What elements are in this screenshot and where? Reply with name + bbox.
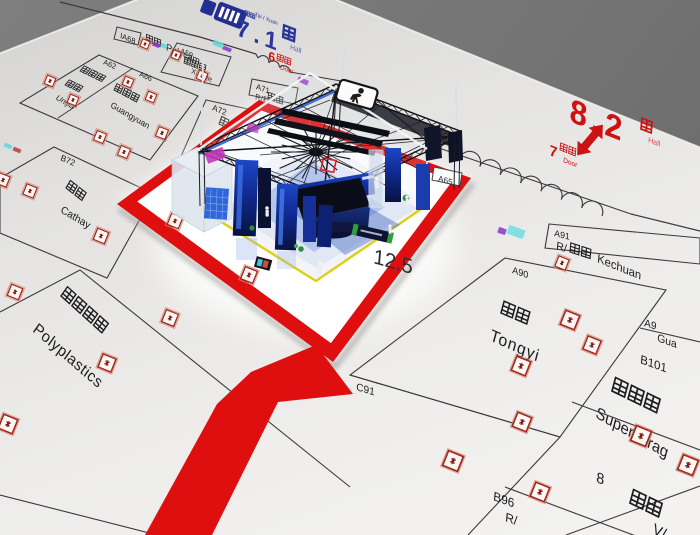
svg-text:7: 7 [549, 142, 558, 162]
svg-text:8: 8 [596, 469, 605, 489]
svg-text:6: 6 [268, 48, 276, 66]
